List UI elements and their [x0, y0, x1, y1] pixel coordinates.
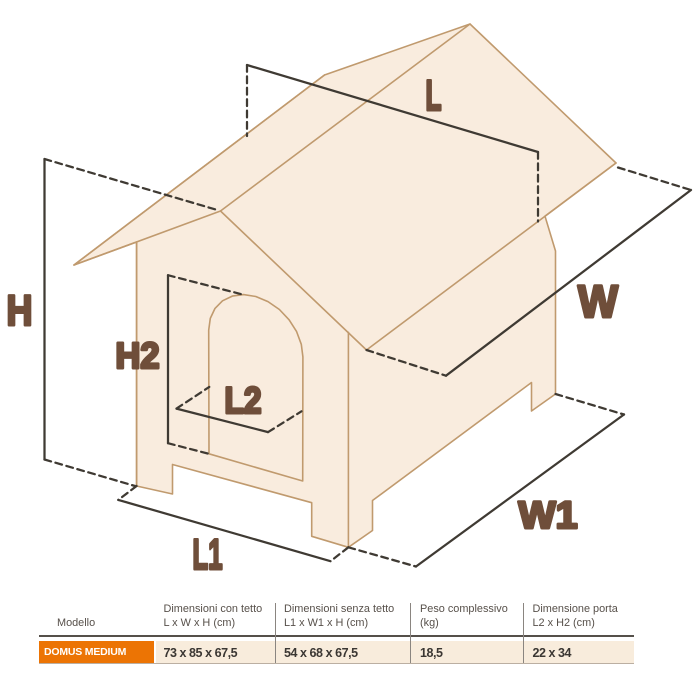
svg-text:L2: L2: [225, 380, 262, 421]
svg-text:L: L: [426, 72, 442, 120]
svg-text:H: H: [7, 287, 33, 335]
svg-text:L1: L1: [193, 531, 223, 579]
svg-text:W: W: [578, 276, 618, 327]
svg-text:H2: H2: [116, 335, 160, 376]
svg-text:W1: W1: [519, 495, 578, 537]
